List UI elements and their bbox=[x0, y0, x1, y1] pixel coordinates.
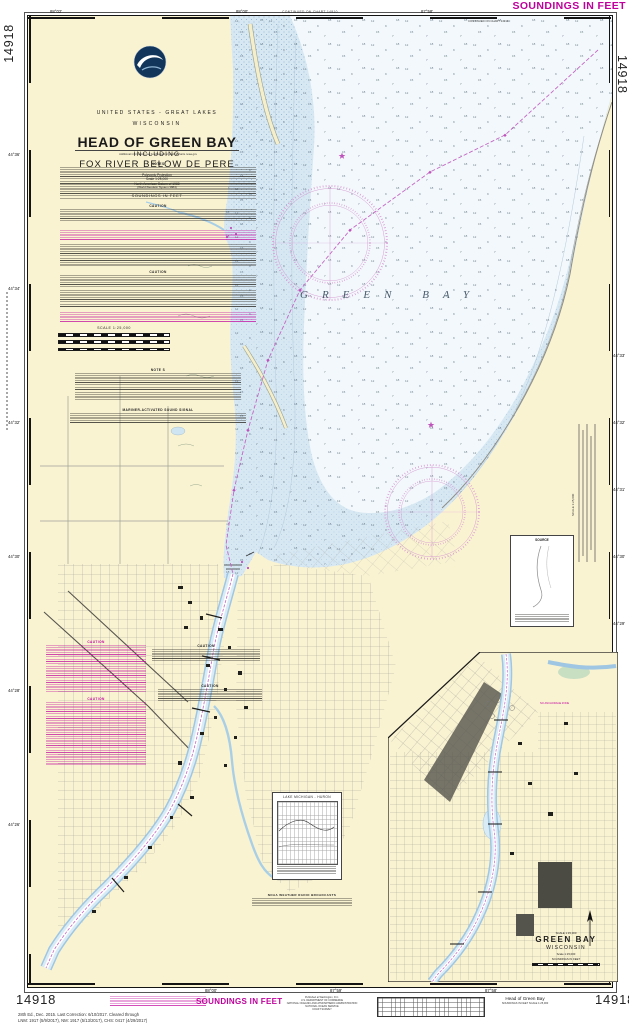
note-paragraph-magenta bbox=[46, 666, 146, 692]
lon-label: 88°02' bbox=[50, 9, 62, 14]
soundings-note-top: SOUNDINGS IN FEET bbox=[512, 0, 626, 12]
inset-soundings: SOUNDINGS IN FEET bbox=[518, 957, 614, 961]
lat-label: 44°30' bbox=[8, 554, 20, 559]
weather-note-block: NOAA WEATHER RADIO BROADCASTS bbox=[252, 893, 352, 907]
source-diagram-box: SOURCE bbox=[510, 535, 574, 627]
water-body-label: GREEN BAY bbox=[300, 289, 483, 301]
tick-band-left bbox=[29, 16, 31, 985]
lake-level-curve bbox=[277, 801, 336, 863]
scale-bar-title: SCALE 1:25,000 bbox=[48, 326, 180, 330]
note-s-heading: NOTE S bbox=[75, 368, 241, 372]
chart-title: HEAD OF GREEN BAY bbox=[40, 134, 274, 150]
notes-heading: NOTES bbox=[60, 162, 256, 166]
nautical-chart-page: 12 9 15 7 18 bbox=[0, 0, 629, 1024]
note-paragraph bbox=[60, 244, 256, 266]
inset-scale-bar bbox=[532, 963, 600, 966]
scale-bar-block: SCALE 1:25,000 bbox=[48, 326, 180, 351]
caution-block: CAUTION bbox=[158, 684, 262, 701]
inset-title: GREEN BAY bbox=[518, 935, 614, 944]
lat-label: 44°34' bbox=[8, 286, 20, 291]
caution-heading: CAUTION bbox=[152, 644, 260, 648]
chart-number-topright: 14918 bbox=[615, 55, 629, 94]
soundings-note-bottom: SOUNDINGS IN FEET bbox=[196, 997, 282, 1006]
lon-label: 87°59' bbox=[330, 988, 342, 993]
scale-bar bbox=[58, 340, 170, 344]
lat-label: 44°30' bbox=[613, 554, 625, 559]
lat-label: 44°28' bbox=[8, 688, 20, 693]
caution-block: CAUTION bbox=[60, 270, 256, 289]
lat-label: 44°32' bbox=[613, 420, 625, 425]
edition-line2: LNM: 1917 (5/9/2017), NM: 1917 (5/13/201… bbox=[18, 1018, 258, 1024]
note-paragraph bbox=[60, 184, 256, 200]
inset-map: NO ANCHORAGE ZONE SCALE 1:15,000 GREEN B… bbox=[388, 652, 618, 982]
scale-bar bbox=[58, 348, 170, 352]
inset-title-block: SCALE 1:15,000 GREEN BAY WISCONSIN Scale… bbox=[518, 930, 614, 966]
caution-block-magenta: CAUTION bbox=[46, 640, 146, 665]
noaa-logo bbox=[132, 44, 168, 80]
publisher-line: COAST SURVEY bbox=[283, 1008, 361, 1011]
note-s-block: NOTE S bbox=[75, 368, 241, 391]
margin-production-note bbox=[6, 290, 8, 430]
caution-block-magenta: CAUTION bbox=[46, 697, 146, 736]
lon-label: 87°58' bbox=[421, 9, 433, 14]
edition-note: 28th Ed., Dec. 2015. Last Correction: 6/… bbox=[18, 1012, 258, 1023]
lat-label: 44°29' bbox=[613, 621, 625, 626]
notes-block: NOTES bbox=[60, 162, 256, 185]
lat-label: 44°33' bbox=[613, 353, 625, 358]
note-paragraph-magenta bbox=[60, 230, 256, 240]
note-paragraph-magenta bbox=[60, 312, 256, 323]
lat-label: 44°31' bbox=[613, 487, 625, 492]
sound-signal-block: MARINER-ACTIVATED SOUND SIGNAL bbox=[70, 408, 246, 423]
footer-title-block: Head of Green Bay SOUNDINGS IN FEET SCAL… bbox=[487, 996, 563, 1005]
publisher-block: Published at Washington, D.C. U.S. DEPAR… bbox=[283, 996, 361, 1011]
caution-heading: CAUTION bbox=[158, 684, 262, 688]
correction-grid bbox=[377, 997, 485, 1017]
caution-heading: CAUTION bbox=[46, 697, 146, 701]
tick-band-bottom bbox=[28, 983, 611, 985]
lat-label: 44°32' bbox=[8, 420, 20, 425]
footer-chart-sub: SOUNDINGS IN FEET SCALE 1:25,000 bbox=[487, 1002, 563, 1005]
chart-region: UNITED STATES - GREAT LAKES bbox=[40, 110, 274, 116]
note-paragraph bbox=[60, 290, 256, 308]
lake-level-diagram: LAKE MICHIGAN - HURON bbox=[272, 792, 342, 880]
continued-note-right: CONTINUED ON CHART 14910 bbox=[468, 19, 508, 23]
lat-label: 44°26' bbox=[8, 822, 20, 827]
scale-bar bbox=[58, 333, 170, 337]
note-paragraph-magenta bbox=[46, 736, 146, 766]
info-note: Additional information can be obtained a… bbox=[60, 153, 256, 156]
title-divider bbox=[75, 150, 239, 151]
inset-state: WISCONSIN bbox=[518, 945, 614, 951]
inset-scale: Scale 1:15,000 bbox=[518, 952, 614, 956]
footer-chart-title: Head of Green Bay bbox=[487, 996, 563, 1001]
lat-label: 44°36' bbox=[8, 152, 20, 157]
note-paragraph bbox=[75, 392, 241, 400]
chart-number-bottomright: 14918 bbox=[595, 992, 629, 1007]
continued-note-top: CONTINUED ON CHART 14910 bbox=[230, 10, 390, 14]
caution-block: CAUTION bbox=[60, 204, 256, 221]
north-arrow-icon bbox=[585, 908, 595, 948]
lon-label: 87°58' bbox=[485, 988, 497, 993]
no-anchorage-note: NO ANCHORAGE ZONE bbox=[540, 702, 590, 705]
chart-number-topleft: 14918 bbox=[2, 24, 16, 63]
caution-heading: CAUTION bbox=[60, 270, 256, 274]
caution-block: CAUTION bbox=[152, 644, 260, 663]
weather-heading: NOAA WEATHER RADIO BROADCASTS bbox=[252, 893, 352, 897]
caution-heading: CAUTION bbox=[60, 204, 256, 208]
tick-band-top bbox=[28, 17, 611, 19]
chart-number-bottomleft: 14918 bbox=[16, 992, 56, 1007]
caution-heading: CAUTION bbox=[46, 640, 146, 644]
sound-signal-heading: MARINER-ACTIVATED SOUND SIGNAL bbox=[70, 408, 246, 412]
lake-diagram-title: LAKE MICHIGAN - HURON bbox=[273, 795, 341, 799]
reproduction-note-magenta bbox=[110, 996, 206, 1006]
source-mini-map bbox=[511, 542, 573, 608]
chart-state: WISCONSIN bbox=[40, 121, 274, 127]
lon-label: 88°00' bbox=[205, 988, 217, 993]
